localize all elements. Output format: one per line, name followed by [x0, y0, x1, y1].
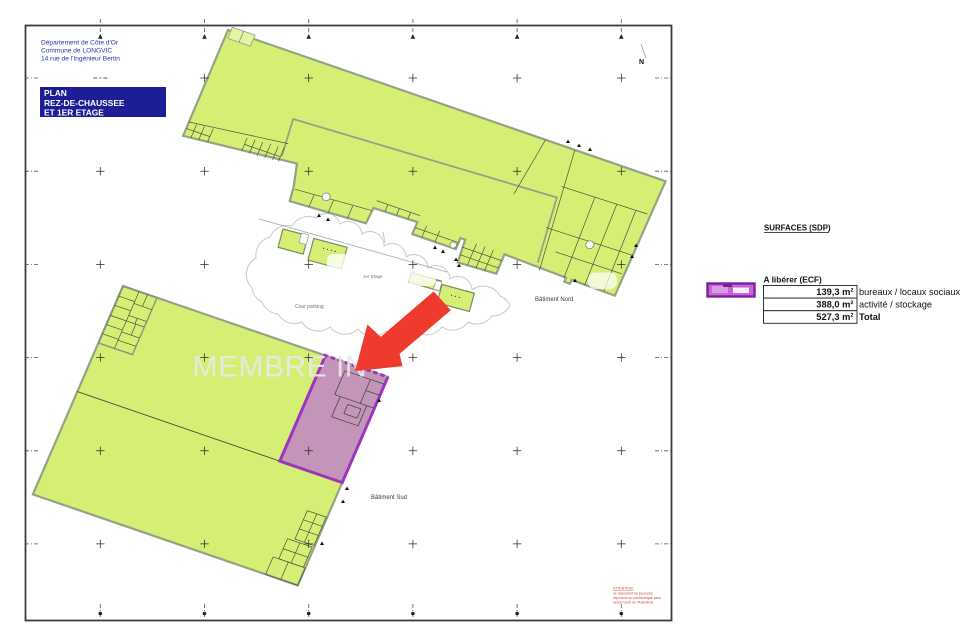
- svg-text:ET 1ER ETAGE: ET 1ER ETAGE: [44, 107, 104, 117]
- svg-text:REZ-DE-CHAUSSEE: REZ-DE-CHAUSSEE: [44, 98, 125, 108]
- svg-text:ce document ne peut etre: ce document ne peut etre: [613, 592, 653, 596]
- svg-text:Commune de LONGVIC: Commune de LONGVIC: [41, 48, 112, 55]
- svg-text:ATTENTION:: ATTENTION:: [613, 587, 634, 591]
- svg-text:Cour parking: Cour parking: [295, 304, 324, 310]
- svg-text:1er Etage: 1er Etage: [363, 274, 383, 279]
- svg-text:Total: Total: [859, 312, 881, 322]
- svg-text:139,3 m²: 139,3 m²: [816, 287, 853, 297]
- svg-text:MEMBRE IN: MEMBRE IN: [193, 351, 368, 384]
- svg-text:388,0 m²: 388,0 m²: [816, 300, 853, 310]
- svg-text:SURFACES (SDP): SURFACES (SDP): [764, 224, 831, 233]
- svg-text:Bâtiment Sud: Bâtiment Sud: [371, 495, 407, 501]
- svg-text:accord ecrit de l'AGENCE: accord ecrit de l'AGENCE: [613, 601, 654, 605]
- svg-text:bureaux / locaux sociaux: bureaux / locaux sociaux: [859, 287, 960, 297]
- svg-text:A libérer (ECF): A libérer (ECF): [764, 275, 823, 285]
- svg-text:Département de Côte d'Or: Département de Côte d'Or: [41, 40, 119, 47]
- svg-text:Bâtiment Nord: Bâtiment Nord: [535, 297, 573, 303]
- svg-text:527,3 m²: 527,3 m²: [816, 312, 853, 322]
- svg-text:reproduit ou communique sans: reproduit ou communique sans: [613, 596, 661, 600]
- svg-text:14 rue de l'Ingénieur Bertin: 14 rue de l'Ingénieur Bertin: [41, 56, 120, 63]
- svg-text:N: N: [639, 59, 644, 66]
- svg-text:PLAN: PLAN: [44, 88, 67, 98]
- svg-text:activité / stockage: activité / stockage: [859, 300, 932, 310]
